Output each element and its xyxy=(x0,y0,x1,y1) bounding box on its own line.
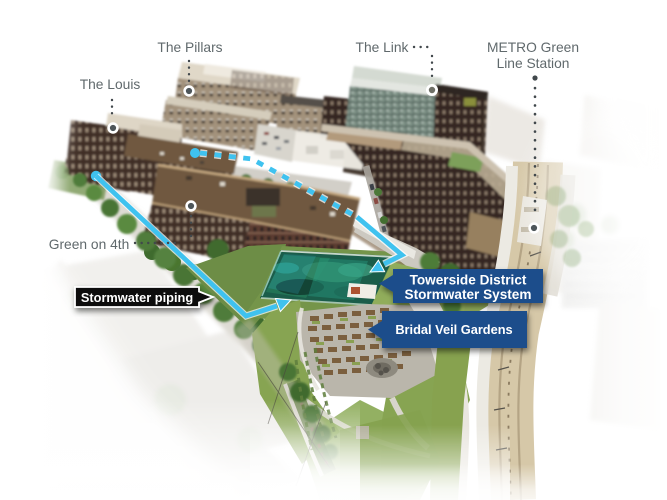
svg-text:The Louis: The Louis xyxy=(80,77,141,92)
svg-text:Bridal Veil Gardens: Bridal Veil Gardens xyxy=(395,322,512,337)
svg-text:Stormwater System: Stormwater System xyxy=(405,287,532,302)
svg-text:Line Station: Line Station xyxy=(497,56,570,71)
svg-text:The Link: The Link xyxy=(356,40,409,55)
svg-text:The Pillars: The Pillars xyxy=(157,40,222,55)
svg-text:Towerside District: Towerside District xyxy=(410,273,527,288)
svg-text:Stormwater piping: Stormwater piping xyxy=(81,290,193,305)
svg-text:Green on 4th: Green on 4th xyxy=(49,237,130,252)
svg-text:METRO Green: METRO Green xyxy=(487,40,579,55)
